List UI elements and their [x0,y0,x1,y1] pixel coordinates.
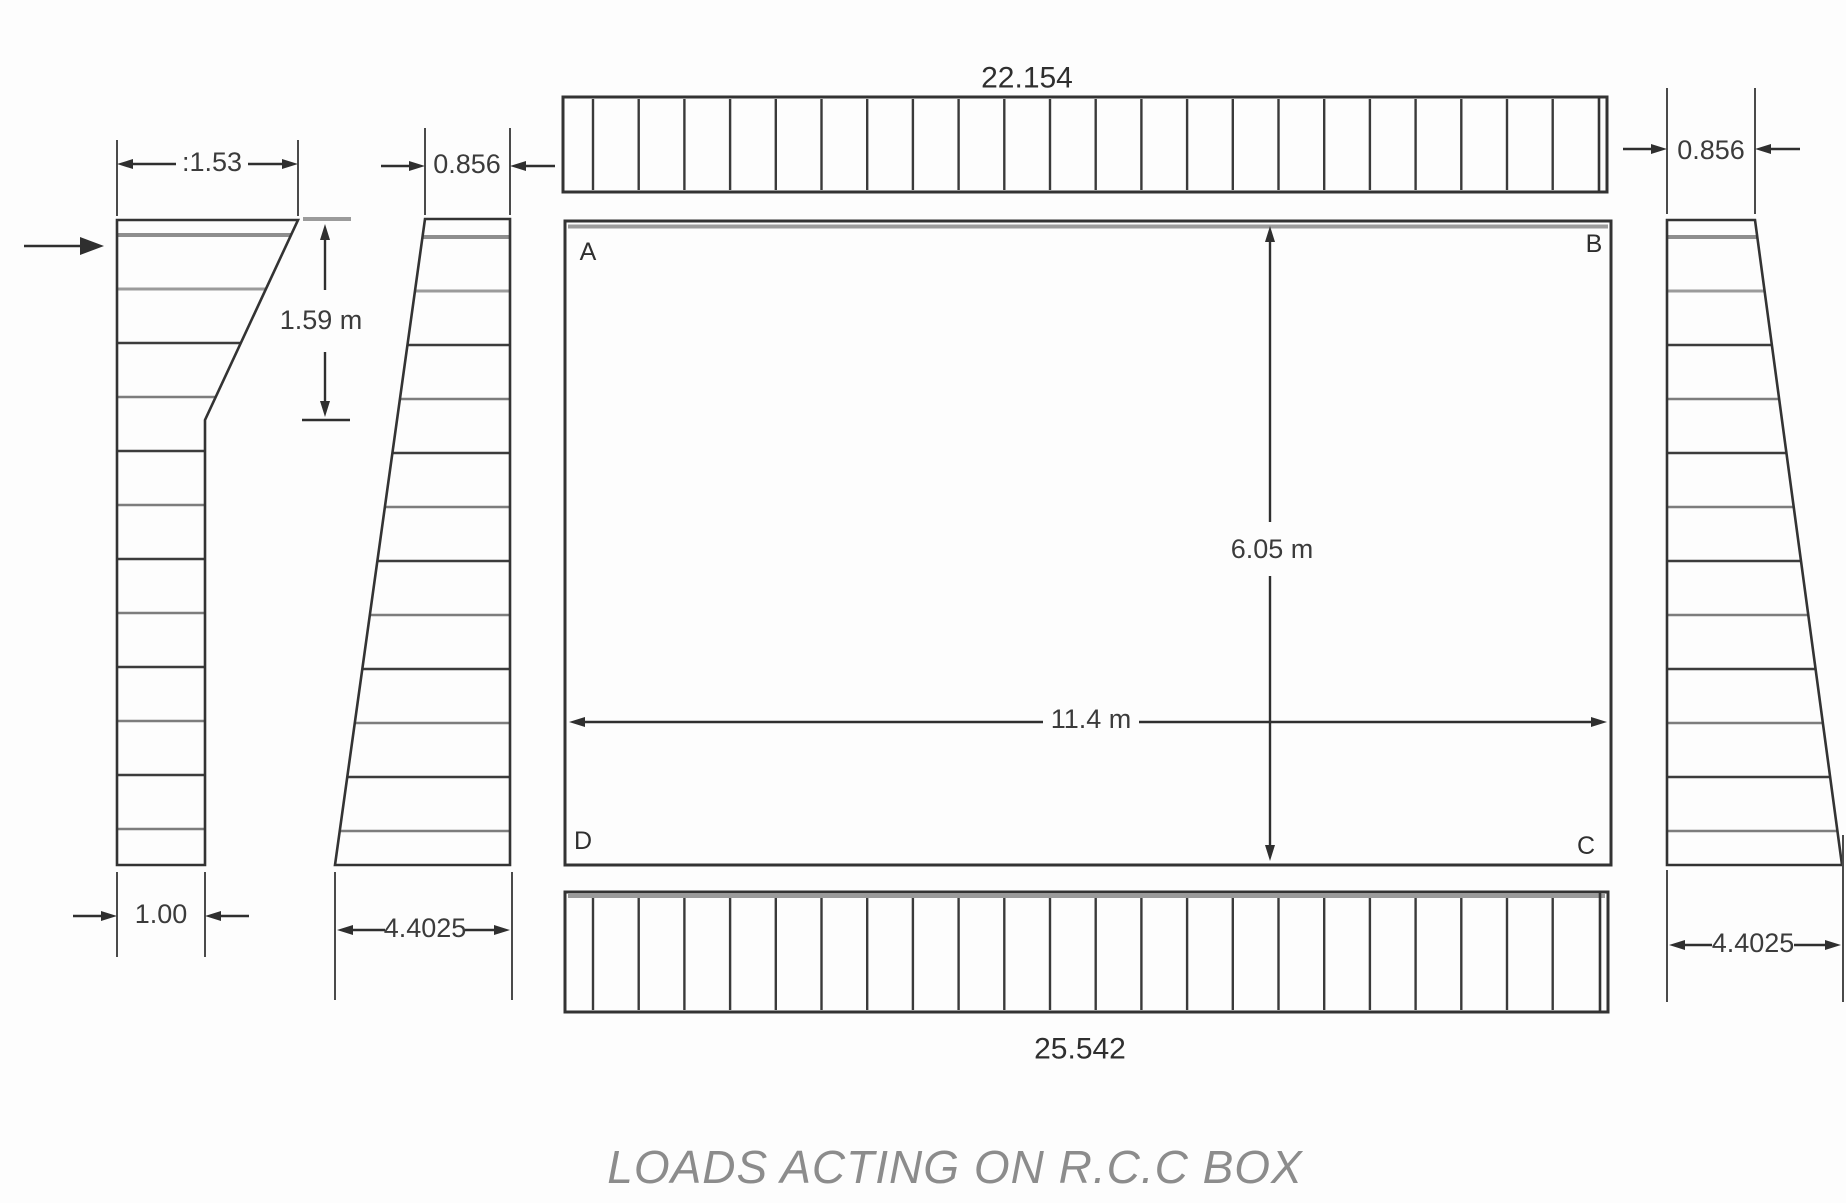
top-udl-outline [563,97,1607,192]
box-width-dimension: 11.4 m [569,704,1607,734]
corner-label-a: A [580,238,597,266]
surcharge-bottom-width-label: 1.00 [135,899,188,929]
top-udl-value-label: 22.154 [981,62,1073,95]
right-earth-top-width-label: 0.856 [1677,135,1745,165]
surcharge-top-width-label: :1.53 [182,147,242,177]
left-earth-bottom-width-dimension: 4.4025 [335,872,512,1000]
left-earth-top-width-label: 0.856 [433,149,501,179]
left-earth-bottom-width-label: 4.4025 [384,913,467,943]
left-earth-pressure-diagram: 0.856 4.4025 [335,128,555,1000]
surcharge-top-width-dimension: :1.53 [117,140,298,216]
bottom-udl-load: 25.542 [565,892,1608,1066]
left-surcharge-pressure-diagram: :1.53 1.59 m 1.00 [24,140,362,957]
rcc-box: A B C D [565,221,1611,865]
surcharge-depth-dimension: 1.59 m [280,219,363,420]
corner-label-b: B [1586,230,1603,258]
surcharge-depth-label: 1.59 m [280,305,363,335]
box-height-dim-label: 6.05 m [1231,534,1314,564]
left-earth-top-width-dimension: 0.856 [381,128,555,215]
right-earth-bottom-width-label: 4.4025 [1712,928,1795,958]
right-earth-hatch [1668,237,1837,831]
right-earth-pressure-diagram: 0.856 4.4025 [1623,88,1843,1002]
corner-label-d: D [574,827,592,855]
figure-caption: LOADS ACTING ON R.C.C BOX [607,1141,1304,1193]
right-arrow-icon [1591,717,1607,727]
box-width-dim-label: 11.4 m [1051,704,1132,734]
left-earth-hatch [340,237,509,831]
left-surcharge-outline [117,220,298,865]
surcharge-bottom-width-dimension: 1.00 [73,872,249,957]
top-udl-load: 22.154 [563,62,1607,193]
bottom-udl-hatch [593,894,1553,1010]
right-earth-top-width-dimension: 0.856 [1623,88,1800,214]
bottom-udl-outline [565,892,1608,1012]
lateral-pressure-arrow-icon [24,237,104,255]
corner-label-c: C [1577,832,1595,860]
down-arrow-icon [1265,845,1275,861]
top-udl-hatch [593,99,1553,190]
right-earth-outline [1667,220,1842,865]
box-height-dimension: 6.05 m [1231,226,1314,861]
bottom-udl-value-label: 25.542 [1034,1033,1126,1066]
rcc-box-outline [565,221,1611,865]
left-arrow-icon [569,717,585,727]
loads-diagram-canvas: 22.154 25.542 A B C D 6.05 m 11.4 m [0,0,1846,1203]
right-earth-bottom-width-dimension: 4.4025 [1667,835,1843,1002]
